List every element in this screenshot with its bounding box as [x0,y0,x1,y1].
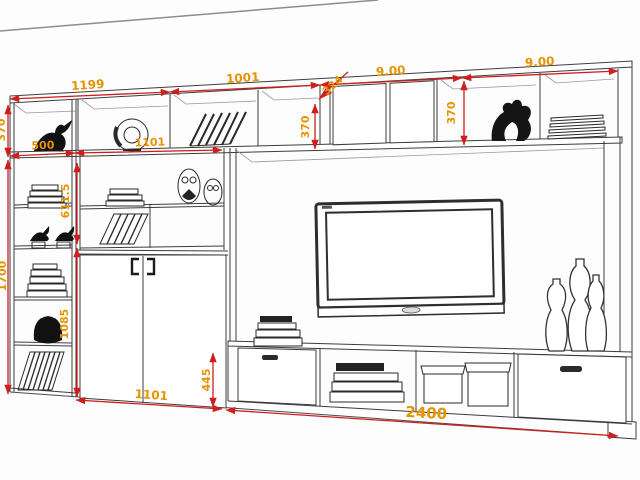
bench-drawer-right [518,354,626,423]
boxes-on-bench-top [254,316,302,346]
wall-ceiling-line [0,0,378,31]
dim-label-bottom-2400: 2400 [405,403,448,423]
dim-label-shelf-500: 500 [31,139,55,153]
dim-label-top-width-1: 1199 [71,77,105,93]
abstract-figurine-right [492,100,531,141]
flat-box-stack-in-bench [330,363,404,402]
dim-label-mid-370: 370 [299,115,312,138]
dim-label-shelf-1101: 1101 [134,135,165,149]
tv-screen [326,209,494,299]
tv [316,200,504,317]
dim-label-left-1700: 1700 [0,260,9,291]
drawer-right-handle [560,366,582,372]
dim-label-top-width-2: 1001 [226,70,260,86]
tv-badge [402,307,420,313]
elevation-drawing: 1199 1001 9.00 9.00 370 500 1101 611.5 1… [0,0,640,480]
leaning-books-top [190,112,246,146]
dim-label-left-370: 370 [0,118,8,141]
tv-logo [322,206,332,209]
tv-niche-left-panel [230,148,236,344]
wall-cabinet-doors [333,81,434,145]
dim-label-right-370: 370 [445,101,458,124]
drawer-left-handle [262,355,278,360]
owl-masks [178,169,222,205]
middle-shelf-column [78,148,228,255]
stacked-boards-top-right [548,115,606,139]
elevation-drawing-page: 1199 1001 9.00 9.00 370 500 1101 611.5 1… [0,0,640,480]
leaning-striped-books-left [18,352,64,390]
dim-label-top-width-4: 9.00 [524,54,555,70]
top-row-bottom-board [10,137,622,158]
dim-label-left-1085: 1085 [58,309,71,340]
leaning-striped-books-middle [100,214,148,244]
dim-label-bottom-1101: 1101 [134,387,168,403]
lidded-boxes-in-bench [421,363,511,406]
dim-label-left-611: 611.5 [59,184,72,219]
book-stack-left-row4 [27,264,67,297]
vases [546,259,607,351]
book-stack-middle-row2 [106,189,144,206]
dim-label-bench-445: 445 [200,369,213,392]
dim-label-top-width-3: 9.00 [375,63,406,79]
